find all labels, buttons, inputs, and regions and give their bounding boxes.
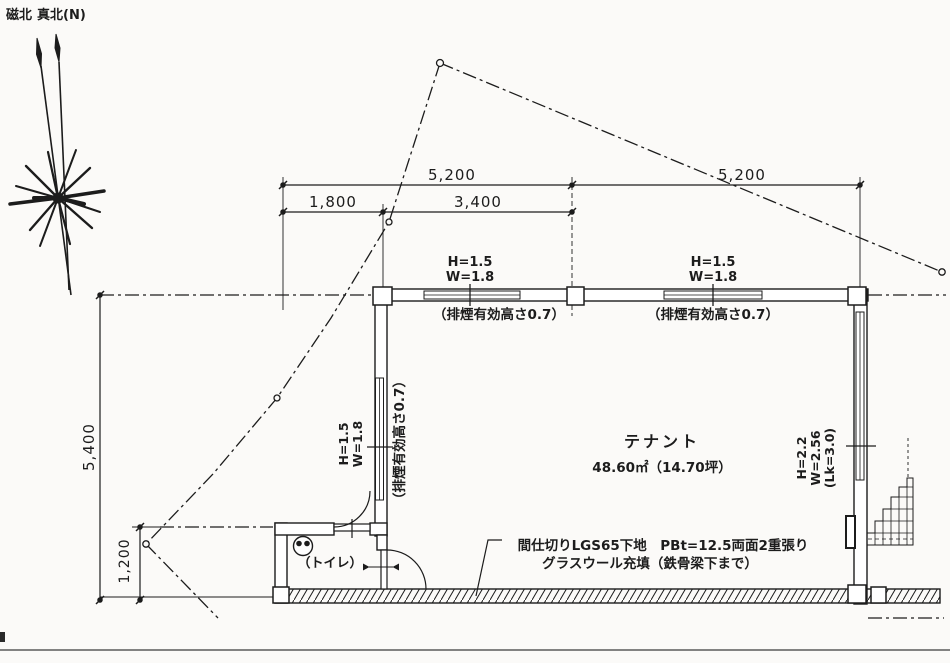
window-right-w: W=2.56 <box>808 430 823 485</box>
window-left-h: H=1.5 <box>336 422 351 465</box>
partition-note-line2: グラスウール充填（鉄骨梁下まで） <box>542 555 758 572</box>
toilet-fan-symbol <box>294 537 313 556</box>
column-top-left <box>373 287 392 305</box>
floor-plan-svg: 磁北 真北(N) <box>0 0 950 663</box>
window-left-w: W=1.8 <box>350 421 365 467</box>
column-bottom-left <box>273 587 289 603</box>
dim-sub-right: 3,400 <box>454 193 502 211</box>
dim-height-total: 5,400 <box>80 423 98 471</box>
window-right-h: H=2.2 <box>794 436 809 479</box>
window-top-right-note: （排煙有効高さ0.7） <box>647 306 779 323</box>
window-top-left-h: H=1.5 <box>448 255 493 270</box>
window-right-lk: (Lk=3.0) <box>822 428 837 488</box>
toilet-wall-top-left <box>275 523 334 535</box>
column-top-middle <box>567 287 584 305</box>
window-top-left-w: W=1.8 <box>446 270 494 285</box>
floor-plan-sheet: 磁北 真北(N) <box>0 0 950 663</box>
window-left-note: （排煙有効高さ0.7） <box>391 374 408 506</box>
tenant-room-name: テナント <box>624 432 700 451</box>
toilet-wall-top-right <box>370 523 387 535</box>
window-top-right-h: H=1.5 <box>691 255 736 270</box>
column-bottom-right <box>848 585 866 603</box>
dim-span-left: 5,200 <box>428 166 476 184</box>
window-top-right-w: W=1.8 <box>689 270 737 285</box>
right-wall-pilaster <box>846 516 855 548</box>
toilet-side-door-leaf <box>381 550 387 589</box>
toilet-room-name: （トイレ） <box>297 555 362 571</box>
column-top-right <box>848 287 866 305</box>
scan-mark <box>0 632 5 642</box>
column-bottom-wall <box>871 587 886 603</box>
partition-note-line1: 間仕切りLGS65下地 PBt=12.5両面2重張り <box>518 537 809 554</box>
dim-toilet-depth: 1,200 <box>117 538 133 583</box>
window-top-left-note: （排煙有効高さ0.7） <box>433 306 565 323</box>
partition-wall-bottom <box>275 589 940 603</box>
dim-span-right: 5,200 <box>718 166 766 184</box>
toilet-wall-right-stub <box>377 535 387 550</box>
tenant-room-area: 48.60㎡（14.70坪） <box>592 459 731 476</box>
true-north-label: 真北(N) <box>37 7 86 23</box>
paper-background <box>0 0 950 663</box>
magnetic-north-label: 磁北 <box>6 7 32 23</box>
dim-sub-left: 1,800 <box>309 193 357 211</box>
